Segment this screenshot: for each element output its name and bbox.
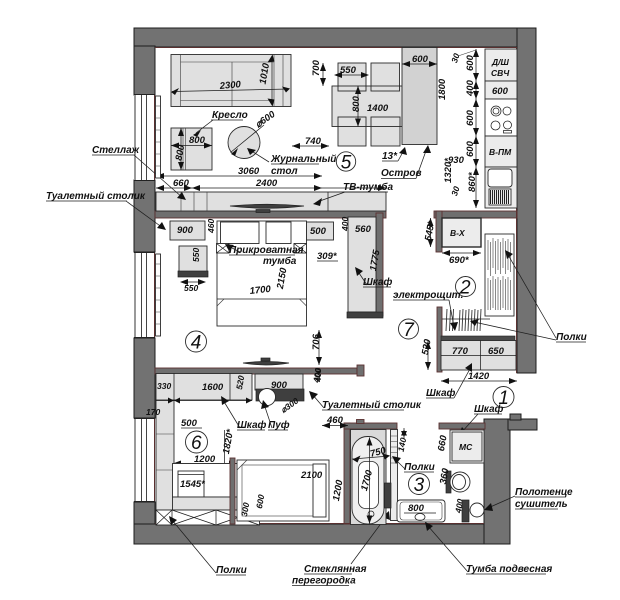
svg-text:2300: 2300 — [218, 79, 242, 92]
svg-text:Стеклянная: Стеклянная — [304, 564, 367, 575]
svg-text:550: 550 — [184, 283, 198, 293]
svg-text:600: 600 — [492, 86, 509, 97]
svg-text:500: 500 — [181, 418, 198, 429]
svg-text:1800: 1800 — [437, 78, 448, 100]
svg-text:550: 550 — [340, 65, 357, 76]
svg-text:650: 650 — [488, 346, 505, 357]
svg-text:Полотенце: Полотенце — [515, 487, 573, 498]
svg-text:6: 6 — [191, 433, 202, 454]
svg-text:СВЧ: СВЧ — [491, 68, 510, 78]
svg-text:Д/Ш: Д/Ш — [491, 57, 510, 67]
svg-text:500: 500 — [310, 226, 327, 237]
svg-text:Остров: Остров — [381, 168, 422, 179]
svg-text:330: 330 — [157, 381, 171, 391]
svg-text:МС: МС — [459, 442, 473, 452]
svg-text:900: 900 — [177, 225, 194, 236]
svg-text:сушитель: сушитель — [515, 499, 568, 510]
svg-text:600: 600 — [465, 109, 476, 126]
svg-text:690*: 690* — [449, 255, 470, 266]
svg-text:Туалетный столик: Туалетный столик — [46, 191, 146, 202]
svg-text:1600: 1600 — [202, 382, 224, 393]
svg-text:309*: 309* — [317, 251, 338, 262]
svg-text:600: 600 — [465, 54, 476, 71]
svg-text:Шкаф: Шкаф — [237, 419, 267, 431]
svg-text:1420: 1420 — [468, 371, 490, 382]
svg-text:460: 460 — [206, 219, 216, 234]
svg-text:2100: 2100 — [300, 470, 323, 481]
svg-text:400: 400 — [465, 79, 476, 97]
svg-text:Шкаф: Шкаф — [426, 387, 456, 399]
svg-text:740: 740 — [305, 136, 322, 147]
svg-text:Полки: Полки — [556, 332, 587, 343]
svg-text:170: 170 — [146, 407, 160, 417]
svg-text:3060: 3060 — [238, 166, 260, 177]
svg-text:560: 560 — [355, 224, 372, 235]
svg-text:7: 7 — [403, 320, 415, 341]
svg-text:Стеллаж: Стеллаж — [92, 145, 140, 156]
svg-text:800: 800 — [189, 135, 206, 146]
svg-text:2400: 2400 — [255, 178, 278, 189]
svg-text:660: 660 — [173, 178, 190, 189]
svg-text:550: 550 — [191, 248, 201, 262]
svg-text:1700: 1700 — [249, 284, 272, 297]
svg-text:Журнальный: Журнальный — [270, 154, 336, 165]
svg-text:1545*: 1545* — [180, 479, 206, 490]
svg-text:13*: 13* — [382, 151, 398, 162]
svg-text:600: 600 — [465, 140, 476, 157]
svg-text:860*: 860* — [467, 171, 478, 192]
svg-text:1320*: 1320* — [443, 157, 454, 183]
svg-text:тумба: тумба — [263, 255, 297, 267]
svg-text:4: 4 — [191, 332, 202, 353]
svg-text:900: 900 — [271, 380, 288, 391]
svg-text:Шкаф: Шкаф — [474, 403, 504, 415]
svg-text:800: 800 — [351, 95, 362, 112]
svg-text:3: 3 — [414, 475, 425, 496]
svg-text:Кресло: Кресло — [212, 110, 248, 121]
svg-text:600: 600 — [412, 54, 429, 65]
svg-text:Тумба подвесная: Тумба подвесная — [466, 563, 552, 575]
svg-text:1400: 1400 — [367, 103, 389, 114]
svg-text:Туалетный столик: Туалетный столик — [322, 400, 422, 411]
svg-text:Полки: Полки — [216, 565, 247, 576]
svg-text:ТВ-тумба: ТВ-тумба — [343, 181, 393, 193]
svg-text:Шкаф: Шкаф — [363, 276, 393, 288]
svg-text:Прикроватная: Прикроватная — [229, 245, 304, 256]
svg-text:стол: стол — [271, 166, 298, 177]
svg-text:800: 800 — [408, 503, 425, 514]
svg-text:В-Х: В-Х — [450, 228, 466, 238]
svg-text:Полки: Полки — [404, 462, 435, 473]
svg-text:770: 770 — [452, 346, 469, 357]
svg-text:5: 5 — [341, 152, 352, 173]
svg-text:перегородка: перегородка — [292, 576, 356, 587]
svg-text:электрощит.: электрощит. — [393, 290, 463, 301]
svg-text:700: 700 — [311, 59, 322, 76]
svg-text:460: 460 — [326, 415, 344, 426]
svg-text:В-ПМ: В-ПМ — [489, 147, 512, 157]
